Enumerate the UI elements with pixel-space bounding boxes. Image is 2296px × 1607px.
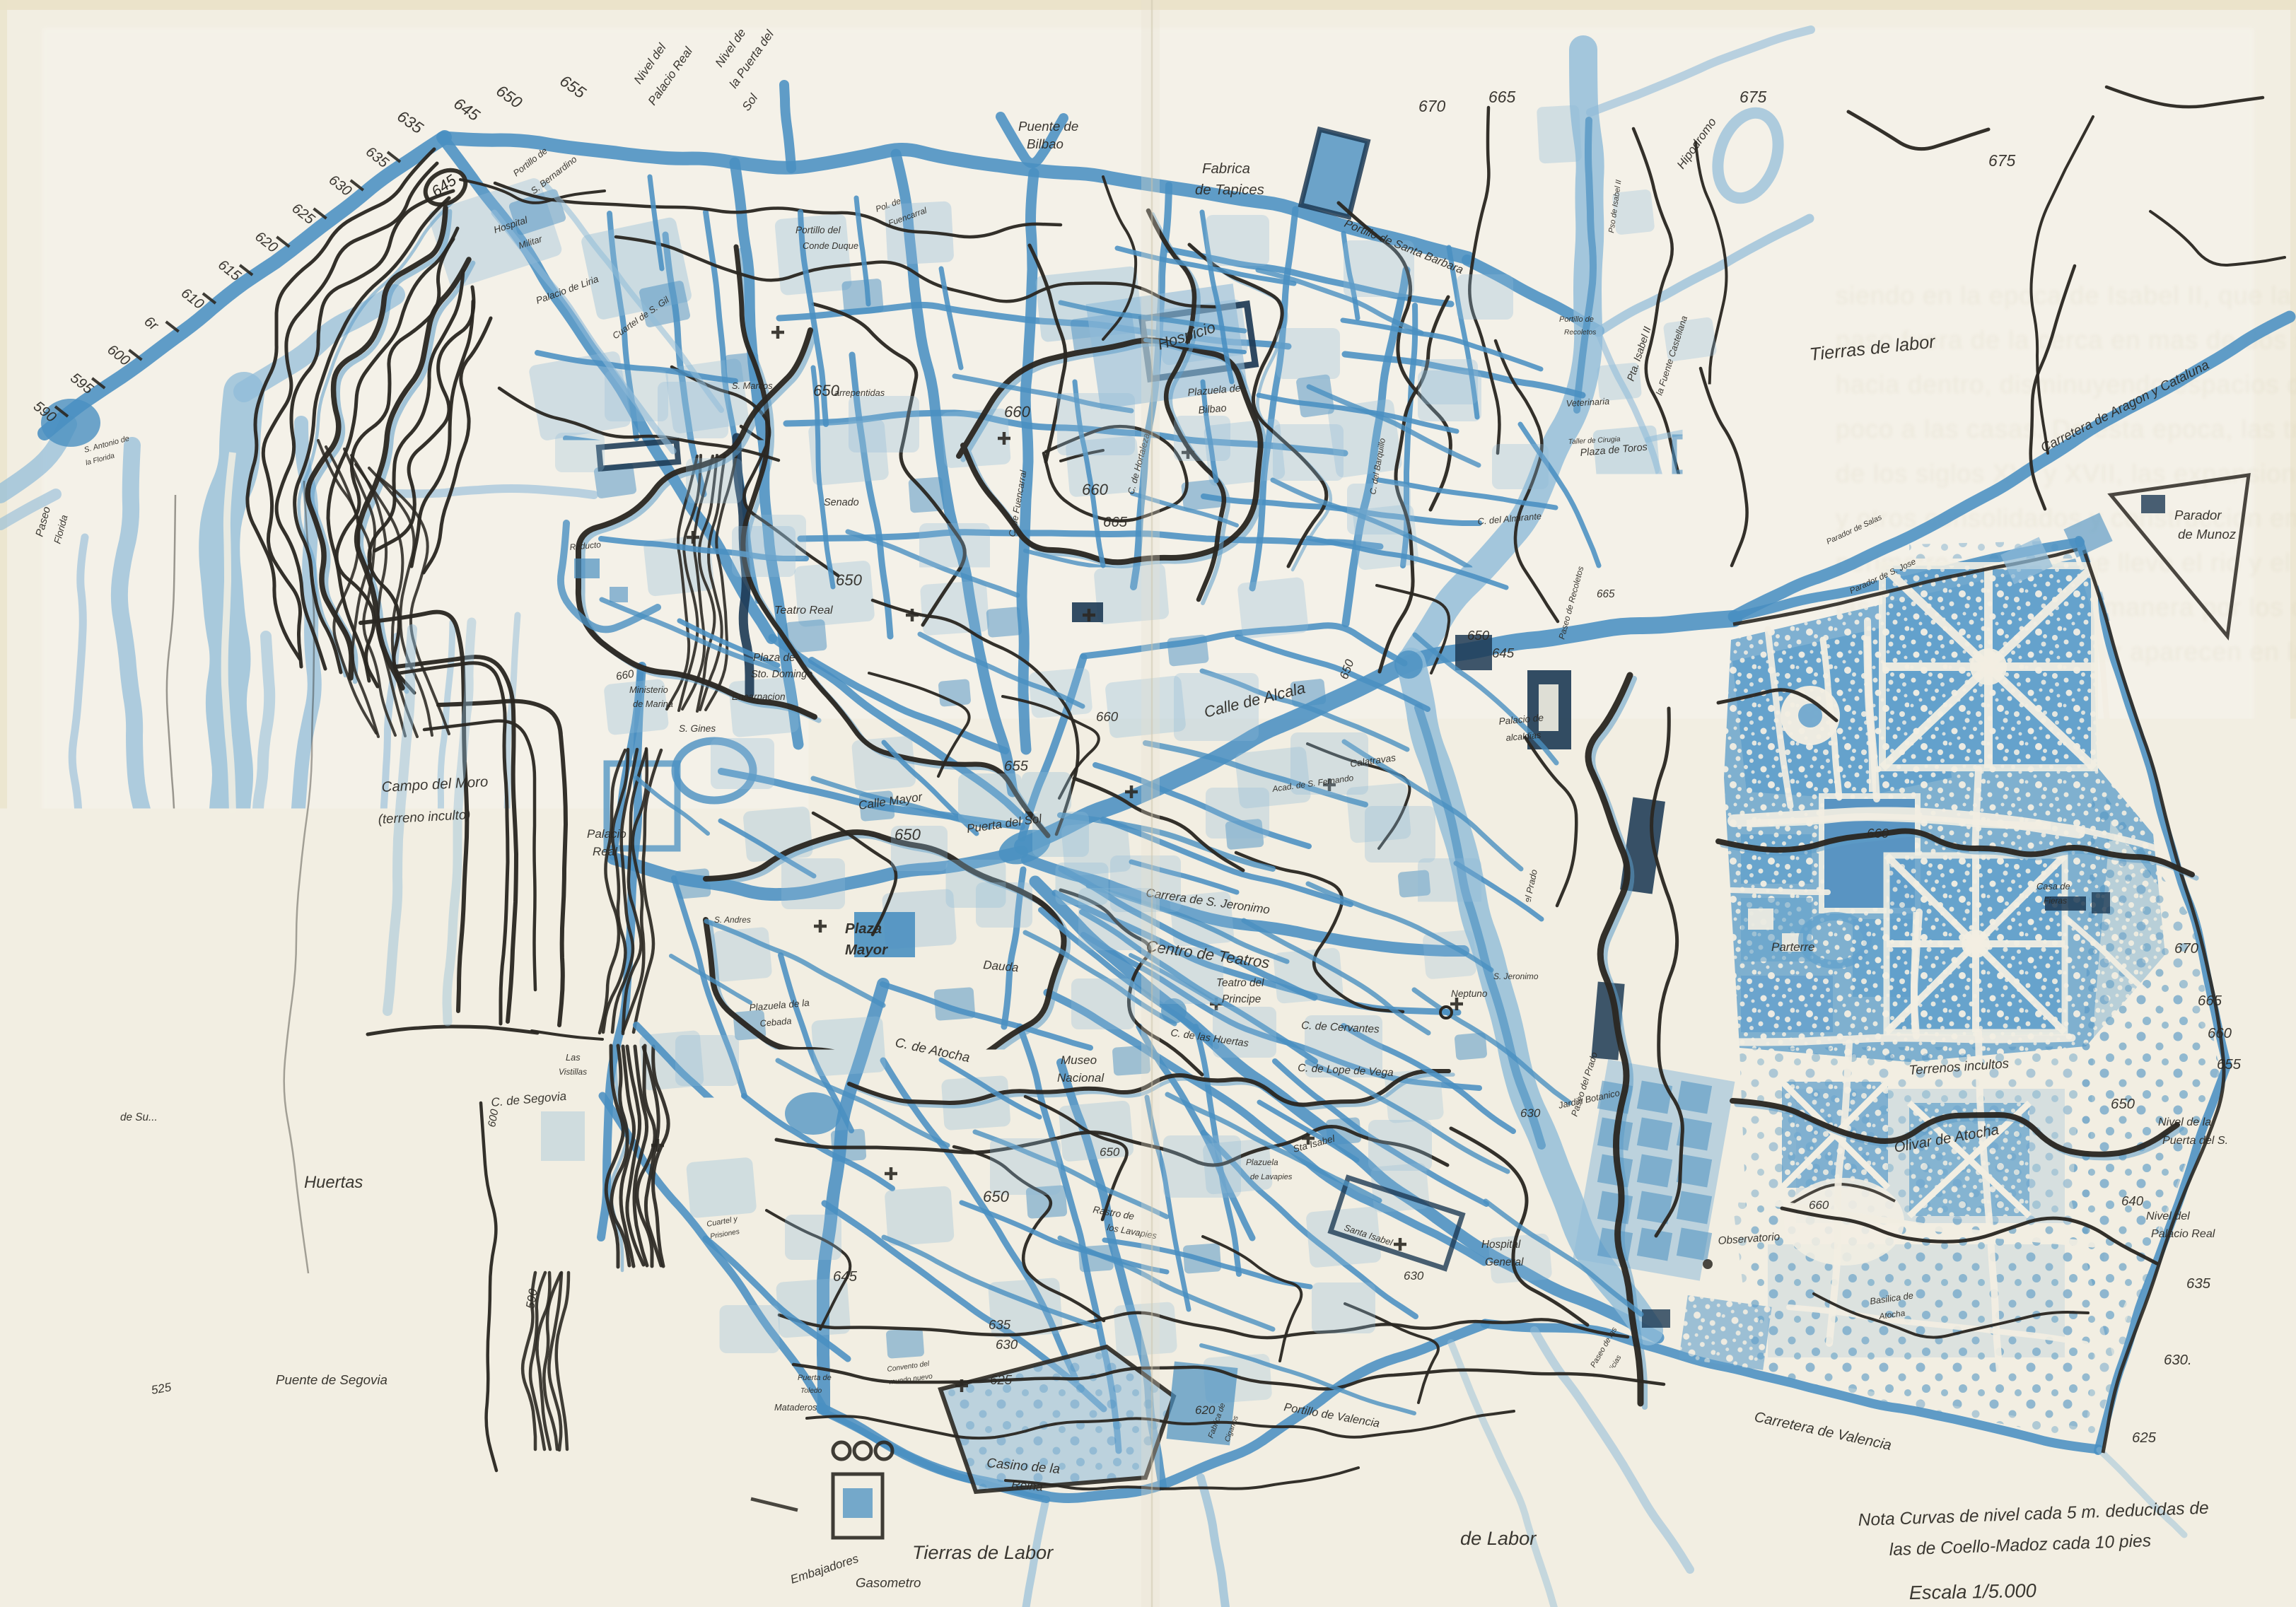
svg-text:675: 675 [1988,151,2015,170]
svg-text:aaa eee ooo: aaa eee ooo [2213,855,2296,884]
svg-text:S. Gines: S. Gines [679,723,716,734]
svg-text:Encarnacion: Encarnacion [732,691,786,702]
svg-text:de los siglos XVI y XVII, las: de los siglos XVI y XVII, las expansione… [1836,459,2296,488]
svg-text:aaa eee ooo: aaa eee ooo [2213,986,2296,1016]
svg-text:de Su...: de Su... [120,1111,158,1123]
svg-text:Puente de Segovia: Puente de Segovia [276,1372,387,1387]
svg-text:650: 650 [983,1188,1010,1205]
svg-text:Principe: Principe [1222,993,1261,1005]
svg-text:655: 655 [1004,759,1029,774]
svg-text:Plazuela: Plazuela [1246,1157,1278,1167]
svg-text:aaa eee ooo: aaa eee ooo [2213,811,2296,841]
svg-text:Gasometro: Gasometro [856,1575,921,1590]
svg-text:Ministerio: Ministerio [629,684,668,695]
svg-text:Parterre: Parterre [1771,940,1814,954]
svg-text:630: 630 [996,1337,1018,1352]
svg-text:660: 660 [1724,612,1741,624]
svg-text:650: 650 [1467,628,1490,643]
svg-text:Veterinaria: Veterinaria [1566,396,1609,409]
svg-text:655: 655 [970,628,995,643]
svg-text:Plaza de: Plaza de [753,652,796,664]
svg-text:670: 670 [1418,97,1445,115]
svg-text:630: 630 [1520,1106,1541,1120]
svg-text:Conde Duque: Conde Duque [803,240,858,251]
svg-text:635: 635 [989,1317,1011,1332]
svg-text:S. Marcos: S. Marcos [732,380,773,391]
svg-text:arrepentidas: arrepentidas [834,387,885,398]
svg-text:665: 665 [1597,588,1615,600]
svg-text:625: 625 [1328,1374,1348,1387]
svg-text:S. Martin: S. Martin [905,613,948,625]
svg-text:Palacio: Palacio [587,827,627,841]
svg-text:660: 660 [1082,481,1109,498]
svg-text:de Munoz: de Munoz [2178,527,2237,542]
svg-text:Museo: Museo [1061,1053,1097,1067]
svg-text:de Lavapies: de Lavapies [1250,1173,1293,1181]
svg-text:Neptuno: Neptuno [1451,988,1488,999]
svg-text:665: 665 [1488,88,1515,106]
svg-text:Huertas: Huertas [304,1173,363,1192]
svg-text:645: 645 [833,1269,858,1285]
svg-text:S. Ildefonso: S. Ildefonso [1088,588,1145,600]
svg-text:650: 650 [894,826,921,843]
svg-text:660: 660 [2208,1026,2232,1041]
svg-text:650: 650 [1100,1145,1120,1159]
svg-text:650: 650 [813,382,840,399]
svg-text:Puerta del S.: Puerta del S. [2162,1134,2228,1147]
svg-text:Recoletos: Recoletos [1564,329,1596,337]
svg-text:Sto. Domingo: Sto. Domingo [751,669,812,680]
svg-text:Mayor: Mayor [845,942,888,958]
svg-text:S. Jeronimo: S. Jeronimo [1493,971,1539,981]
svg-text:665: 665 [2198,993,2222,1009]
svg-text:de Labor: de Labor [1460,1527,1537,1549]
svg-text:Nacional: Nacional [1057,1071,1105,1085]
svg-text:Bilbao: Bilbao [1027,136,1063,151]
svg-text:General: General [1485,1256,1524,1268]
svg-text:S. Francisco: S. Francisco [665,1130,718,1140]
svg-text:Toledo: Toledo [800,1387,822,1395]
svg-text:Teatro del: Teatro del [1216,977,1264,989]
svg-text:aaa eee ooo: aaa eee ooo [2213,899,2296,928]
svg-text:660: 660 [1096,709,1119,724]
svg-text:Puente de: Puente de [1018,119,1078,134]
svg-text:675: 675 [1740,88,1766,106]
svg-text:Fabrica: Fabrica [1202,161,1250,177]
svg-text:Teatro Real: Teatro Real [774,604,833,616]
svg-text:660: 660 [1867,826,1889,841]
svg-text:Parador: Parador [2174,508,2222,522]
svg-text:Palacio Real: Palacio Real [2151,1227,2215,1240]
svg-text:630.: 630. [2164,1352,2192,1368]
svg-text:Portillo del: Portillo del [796,225,841,235]
svg-text:620: 620 [1195,1403,1216,1417]
svg-text:630: 630 [1404,1269,1424,1282]
svg-text:hacia dentro, disminuyendo esp: hacia dentro, disminuyendo espacios de h… [1836,370,2296,399]
svg-text:Puerta de: Puerta de [798,1374,832,1382]
svg-text:S. Andres: S. Andres [714,915,751,925]
svg-text:Vistillas: Vistillas [559,1067,587,1077]
svg-text:de Marina: de Marina [633,699,673,709]
svg-text:640: 640 [2121,1193,2144,1208]
svg-text:Escala 1/5.000: Escala 1/5.000 [1909,1579,2036,1603]
svg-text:Tierras: Tierras [1329,1531,1389,1553]
svg-text:Las: Las [566,1052,581,1063]
svg-text:Senado: Senado [824,497,859,508]
svg-text:Mataderos: Mataderos [774,1402,817,1413]
svg-text:Tierras de Labor: Tierras de Labor [912,1541,1054,1563]
svg-text:Fieras: Fieras [2044,896,2067,906]
svg-text:655: 655 [2217,1057,2242,1073]
svg-text:Portillo de: Portillo de [1559,315,1594,324]
svg-text:aaa eee ooo: aaa eee ooo [2213,942,2296,972]
svg-text:660: 660 [1639,636,1657,648]
svg-text:Reina: Reina [1011,1478,1044,1494]
svg-text:670: 670 [2174,941,2199,957]
svg-text:650: 650 [2111,1097,2135,1112]
svg-text:665: 665 [1103,515,1128,530]
svg-text:de Tapices: de Tapices [1195,182,1264,198]
svg-text:Casa de: Casa de [2036,881,2070,892]
svg-text:Real: Real [593,845,618,858]
svg-text:650: 650 [836,571,863,589]
svg-text:625: 625 [990,1372,1013,1387]
svg-text:Hospital: Hospital [1481,1239,1521,1251]
svg-text:660: 660 [1004,403,1031,421]
svg-text:Plaza: Plaza [845,921,882,937]
svg-text:625: 625 [2132,1430,2157,1446]
svg-text:635: 635 [2186,1276,2211,1292]
svg-text:645: 645 [1492,645,1515,660]
svg-text:Nivel del: Nivel del [2146,1210,2190,1222]
svg-text:Parador: Parador [124,1089,168,1102]
svg-text:660: 660 [1809,1198,1829,1212]
svg-text:Nivel de la: Nivel de la [2158,1116,2211,1128]
